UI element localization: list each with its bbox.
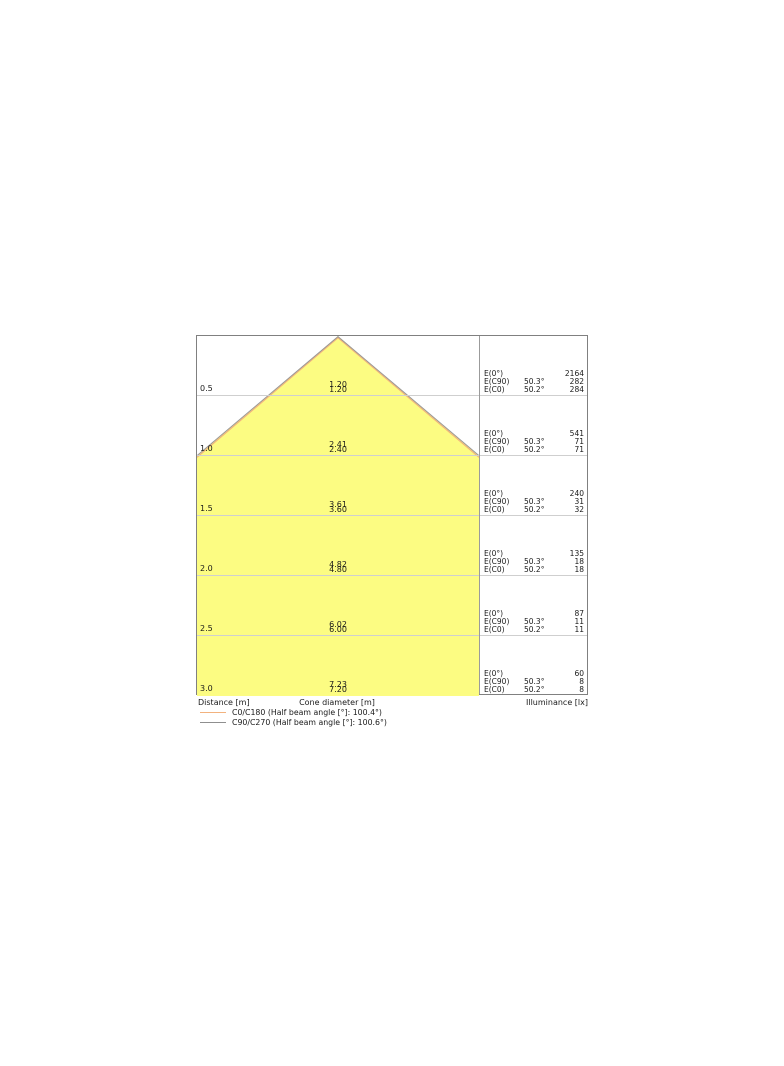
ec0-label: E(C0)	[484, 506, 524, 514]
illuminance-block: E(0°) 135 E(C90) 50.3° 18 E(C0) 50.2° 18	[480, 550, 587, 574]
ec0-row: E(C0) 50.2° 32	[484, 506, 584, 514]
gridline-2-0m	[197, 575, 587, 576]
ec0-row: E(C0) 50.2° 18	[484, 566, 584, 574]
cone-diameter-values: 6.02 6.00	[197, 621, 479, 634]
illuminance-block: E(0°) 2164 E(C90) 50.3° 282 E(C0) 50.2° …	[480, 370, 587, 394]
cone-diagram: 0.5 1.0 1.5 2.0 2.5 3.0 1.20 1.20 2.41 2…	[196, 335, 588, 695]
ec0-row: E(C0) 50.2° 71	[484, 446, 584, 454]
gridline-1-5m	[197, 515, 587, 516]
ec0-value: 18	[558, 566, 584, 574]
legend-line-c90-c270	[200, 722, 226, 723]
diameter-c0-c180: 7.20	[197, 686, 479, 694]
gridline-0-5m	[197, 395, 587, 396]
diameter-c0-c180: 2.40	[197, 446, 479, 454]
ec0-value: 284	[558, 386, 584, 394]
diameter-c0-c180: 6.00	[197, 626, 479, 634]
ec0-angle: 50.2°	[524, 506, 558, 514]
diameter-c0-c180: 1.20	[197, 386, 479, 394]
legend-line-c0-c180	[200, 712, 226, 713]
cone-diameter-values: 1.20 1.20	[197, 381, 479, 394]
ec0-value: 71	[558, 446, 584, 454]
cone-diameter-axis-label: Cone diameter [m]	[299, 698, 375, 707]
distance-axis-label: Distance [m]	[198, 698, 250, 707]
ec0-angle: 50.2°	[524, 566, 558, 574]
cone-diameter-values: 2.41 2.40	[197, 441, 479, 454]
ec0-label: E(C0)	[484, 386, 524, 394]
axis-labels: Distance [m] Cone diameter [m] Illuminan…	[196, 698, 588, 708]
ec0-angle: 50.2°	[524, 686, 558, 694]
legend-label-c0-c180: C0/C180 (Half beam angle [°]: 100.4°)	[232, 708, 382, 717]
illuminance-block: E(0°) 541 E(C90) 50.3° 71 E(C0) 50.2° 71	[480, 430, 587, 454]
ec0-label: E(C0)	[484, 686, 524, 694]
ec0-value: 8	[558, 686, 584, 694]
ec0-row: E(C0) 50.2° 8	[484, 686, 584, 694]
cone-diameter-values: 7.23 7.20	[197, 681, 479, 694]
ec0-angle: 50.2°	[524, 386, 558, 394]
illuminance-block: E(0°) 60 E(C90) 50.3° 8 E(C0) 50.2° 8	[480, 670, 587, 694]
legend-row-c0-c180: C0/C180 (Half beam angle [°]: 100.4°)	[196, 708, 387, 718]
ec0-angle: 50.2°	[524, 626, 558, 634]
ec0-label: E(C0)	[484, 446, 524, 454]
illuminance-block: E(0°) 240 E(C90) 50.3° 31 E(C0) 50.2° 32	[480, 490, 587, 514]
cone-diameter-values: 3.61 3.60	[197, 501, 479, 514]
gridline-1-0m	[197, 455, 587, 456]
ec0-label: E(C0)	[484, 566, 524, 574]
ec0-value: 11	[558, 626, 584, 634]
gridline-2-5m	[197, 635, 587, 636]
illuminance-axis-label: Illuminance [lx]	[526, 698, 588, 707]
illuminance-block: E(0°) 87 E(C90) 50.3° 11 E(C0) 50.2° 11	[480, 610, 587, 634]
ec0-label: E(C0)	[484, 626, 524, 634]
ec0-row: E(C0) 50.2° 11	[484, 626, 584, 634]
legend-label-c90-c270: C90/C270 (Half beam angle [°]: 100.6°)	[232, 718, 387, 727]
ec0-angle: 50.2°	[524, 446, 558, 454]
legend-row-c90-c270: C90/C270 (Half beam angle [°]: 100.6°)	[196, 718, 387, 728]
legend: C0/C180 (Half beam angle [°]: 100.4°) C9…	[196, 708, 387, 727]
ec0-value: 32	[558, 506, 584, 514]
diameter-c0-c180: 4.80	[197, 566, 479, 574]
diameter-c0-c180: 3.60	[197, 506, 479, 514]
cone-diameter-values: 4.82 4.80	[197, 561, 479, 574]
ec0-row: E(C0) 50.2° 284	[484, 386, 584, 394]
